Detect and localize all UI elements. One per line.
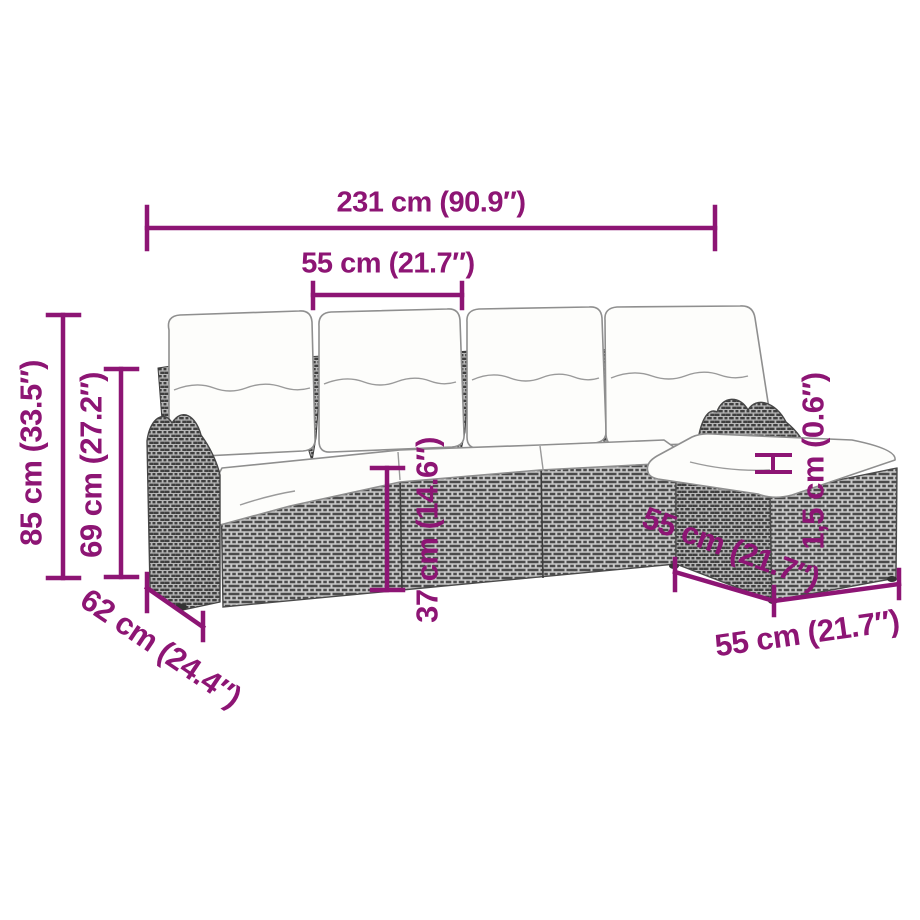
dim-label-overall-width: 231 cm (90.9″) xyxy=(336,189,525,218)
back-cushion xyxy=(467,307,606,448)
dim-label-overall-height: 85 cm (33.5″) xyxy=(16,360,47,546)
dim-label-back-height: 69 cm (27.2″) xyxy=(76,372,107,558)
sofa-dimension-diagram xyxy=(0,0,920,920)
dim-line-back-height xyxy=(106,369,137,577)
back-cushion xyxy=(319,309,464,452)
dim-label-seat-width: 55 cm (21.7″) xyxy=(301,250,474,279)
dim-label-cushion-thickness: 1,5 cm (0.6″) xyxy=(798,372,829,549)
dim-label-base-height: 37 cm (14.6″) xyxy=(412,437,443,623)
dim-line-seat-width xyxy=(313,283,462,308)
back-cushions xyxy=(168,306,772,457)
product-dimension-image: 231 cm (90.9″) 55 cm (21.7″) 85 cm (33.5… xyxy=(0,0,920,920)
